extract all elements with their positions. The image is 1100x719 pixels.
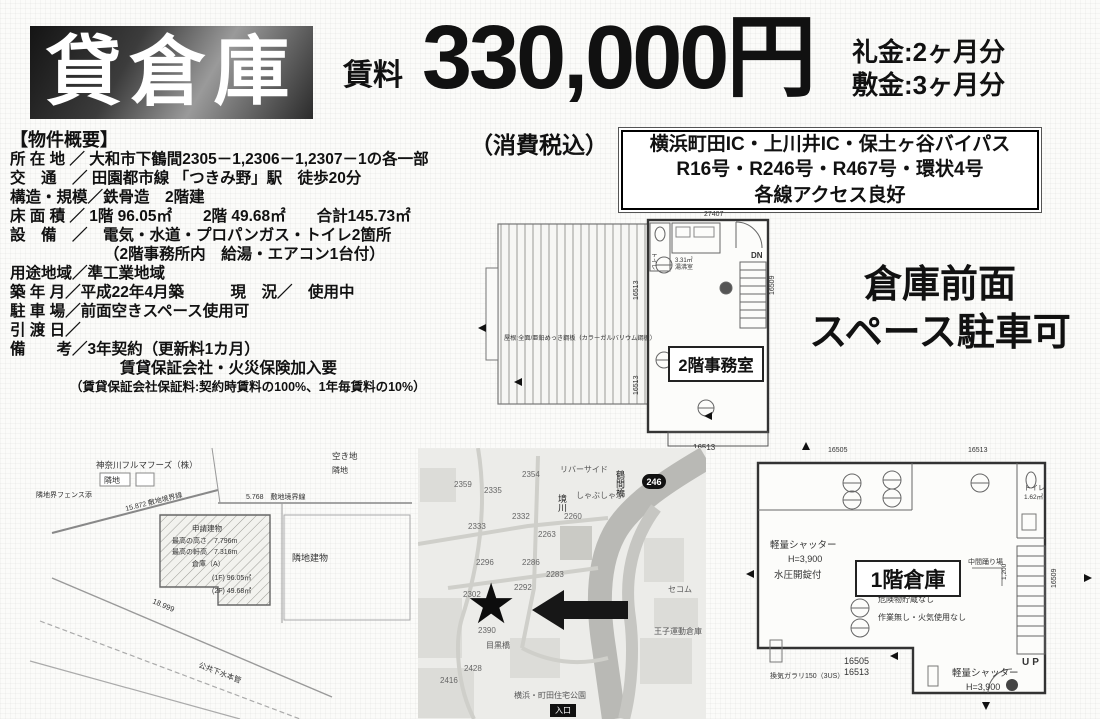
property-line: 床 面 積 ／ 1階 96.05㎡ 2階 49.68㎡ 合計145.73㎡: [10, 207, 490, 226]
map-secom-label: セコム: [668, 584, 692, 595]
room-label-2f: 2階事務室: [668, 346, 764, 382]
map-bridge2-label: 目黒橋: [486, 640, 510, 651]
toilet-area: 1.62㎡: [1024, 492, 1044, 501]
roof-note: 屋根:全面/亜鉛めっき鋼板（カラーガルバリウム鋼板）: [504, 334, 656, 342]
rent-label: 賃料: [343, 50, 403, 94]
tax-note: （消費税込）: [470, 126, 608, 160]
property-line: 駐 車 場／前面空きスペース使用可: [10, 302, 490, 321]
access-line-3: 各線アクセス良好: [754, 183, 905, 208]
property-line: 築 年 月／平成22年4月築 現 況／ 使用中: [10, 283, 490, 302]
floorplan-1f: 軽量シャッター H=3,900 水圧開錠付 危険物貯蔵なし 作業無し・火気使用な…: [740, 428, 1100, 719]
sewer-label: 公共下水本管: [197, 660, 243, 686]
vent-note: 換気ガラリ150（3US）: [770, 671, 844, 680]
room-label-1f: 1階倉庫: [855, 560, 961, 597]
route-246-badge: 246: [642, 474, 666, 489]
neighbor-top-tag: 隣地: [104, 475, 120, 485]
site-plan: 神奈川フルマフーズ（株） 隣地 空き地 隣地 隣地界フェンス添 15.872 敷…: [0, 435, 420, 719]
neighbor-top-label: 神奈川フルマフーズ（株）: [96, 460, 198, 470]
neighbor-right-label: 隣地建物: [292, 552, 328, 563]
landing-label: 中間踊り場: [968, 557, 1003, 566]
roof-notch: [486, 268, 498, 360]
stairs-up-label: UP: [1022, 657, 1042, 668]
map-river-label: 境川: [556, 494, 569, 512]
kitchen-label: 湯沸室: [675, 263, 693, 271]
shutter-right-2: H=3,900: [966, 682, 1000, 692]
property-line: 所 在 地 ／ 大和市下鶴間2305－1,2306－1,2307－1の各一部: [10, 150, 490, 169]
lot-number: 2359: [454, 480, 472, 489]
floorplan-2f: 27407 16513 16513 16509 16513 DN トイレ 3.3…: [468, 210, 780, 455]
knob: [1006, 679, 1018, 691]
shutter-left-3: 水圧開錠付: [774, 569, 822, 581]
access-line-2: R16号・R246号・R467号・環状4号: [676, 157, 983, 182]
map-warehouse-label: 王子運動倉庫: [654, 626, 702, 637]
map-riverside-label: リバーサイド: [560, 464, 608, 475]
map-housing-park-label: 横浜・町田住宅公園: [514, 690, 586, 701]
lot-number: 2286: [522, 558, 540, 567]
property-line: 賃貸保証会社・火災保険加入要: [10, 359, 490, 378]
lot-number: 2335: [484, 486, 502, 495]
neighbor-building-shape: [284, 515, 410, 620]
area-map: リバーサイド しゃぶしゃぶ 鶴間橋 境川 目黒橋 横浜・町田住宅公園 王子運動倉…: [418, 448, 706, 719]
lot-number: 2296: [476, 558, 494, 567]
building-height: 最高の高さ／7.796m: [172, 536, 238, 545]
lot-number: 2263: [538, 530, 556, 539]
vacant-lot-label: 空き地: [332, 451, 358, 461]
dim-top: 27407: [704, 211, 724, 218]
property-overview: 【物件概要】 所 在 地 ／ 大和市下鶴間2305－1,2306－1,2307－…: [10, 131, 490, 397]
banner-text: 貸倉庫: [46, 35, 298, 111]
lot-number: 2416: [440, 676, 458, 685]
dim-left-b: 16513: [633, 375, 640, 395]
property-line: 引 渡 日／: [10, 321, 490, 340]
property-line: 用途地域／準工業地域: [10, 264, 490, 283]
building-title: 申請建物: [192, 523, 222, 533]
lot-number: 2332: [512, 512, 530, 521]
shutter-left-2: H=3,900: [788, 554, 822, 564]
fees-block: 礼金:2ヶ月分 敷金:3ヶ月分: [852, 36, 1005, 101]
park-block: [560, 526, 592, 560]
roof-area: [498, 224, 648, 404]
dim-bottom-1: 16505: [844, 656, 869, 666]
flyer-sheet: 貸倉庫 賃料 330,000円 （消費税込） 礼金:2ヶ月分 敷金:3ヶ月分 横…: [0, 0, 1100, 719]
kitchen-area: 3.31㎡: [675, 256, 693, 264]
property-guarantee-note: （賃貸保証会社保証料:契約時賃料の100%、1年毎賃料の10%）: [10, 378, 490, 397]
floorplan-2f-drawing: 27407 16513 16513 16509 16513 DN トイレ 3.3…: [468, 210, 780, 455]
dim-bottom-2: 16513: [844, 667, 869, 677]
property-line: 交 通 ／ 田園都市線 「つきみ野」駅 徒歩20分: [10, 169, 490, 188]
area-2f: (2F) 49.68㎡: [212, 587, 251, 595]
lot-number: 2333: [468, 522, 486, 531]
site-plan-drawing: 神奈川フルマフーズ（株） 隣地 空き地 隣地 隣地界フェンス添 15.872 敷…: [0, 435, 420, 719]
toilet-label-2f: トイレ: [650, 252, 656, 270]
parking-note-line-2: スペース駐車可: [788, 310, 1092, 358]
lot-number: 2428: [464, 664, 482, 673]
dim-right: 16509: [769, 275, 776, 295]
property-line: 備 考／3年契約（更新料1カ月）: [10, 340, 490, 359]
stairs-dn-label: DN: [751, 251, 763, 260]
location-star-icon: ★: [466, 576, 516, 632]
lot-number: 2260: [564, 512, 582, 521]
property-line: 設 備 ／ 電気・水道・プロパンガス・トイレ2箇所: [10, 226, 490, 245]
vacant-tag: 隣地: [332, 465, 348, 475]
fence-note: 隣地界フェンス添: [36, 490, 92, 499]
building-name: 倉庫（A）: [192, 559, 225, 568]
road-dim: 18.999: [151, 597, 176, 614]
map-gate-badge: 入口: [550, 704, 576, 717]
dim-top-b: 16513: [968, 447, 988, 454]
room-label-1f-text: 1階倉庫: [871, 564, 946, 594]
dim-right-1f: 16509: [1051, 568, 1058, 588]
map-bridge-label: 鶴間橋: [614, 470, 627, 497]
property-line: （2階事務所内 給湯・エアコン1台付）: [10, 245, 490, 264]
property-overview-title: 【物件概要】: [10, 131, 490, 150]
room-label-2f-text: 2階事務室: [678, 352, 753, 376]
route-246-badge-text: 246: [646, 477, 661, 487]
property-line: 構造・規模／鉄骨造 2階建: [10, 188, 490, 207]
boundary-2: 5.768 敷地境界線: [246, 492, 306, 501]
dim-top-a: 16505: [828, 447, 848, 454]
map-gate-badge-text: 入口: [555, 706, 571, 715]
access-line-1: 横浜町田IC・上川井IC・保土ヶ谷バイパス: [650, 132, 1011, 157]
dim-left-a: 16513: [633, 280, 640, 300]
key-money: 礼金:2ヶ月分: [852, 36, 1005, 69]
access-box: 横浜町田IC・上川井IC・保土ヶ谷バイパス R16号・R246号・R467号・環…: [618, 127, 1042, 213]
note-work: 作業無し・火気使用なし: [878, 612, 966, 622]
shutter-left-1: 軽量シャッター: [770, 540, 837, 551]
deposit: 敷金:3ヶ月分: [852, 69, 1005, 102]
location-arrow-icon: [530, 588, 630, 632]
lot-number: 2354: [522, 470, 540, 479]
lot-number: 2283: [546, 570, 564, 579]
shutter-right-1: 軽量シャッター: [952, 668, 1019, 679]
title-banner: 貸倉庫: [30, 26, 313, 119]
area-1f: (1F) 96.05㎡: [212, 574, 251, 582]
parking-note-line-1: 倉庫前面: [788, 262, 1092, 310]
toilet-label-1f: トイレ: [1024, 485, 1045, 492]
rent-amount: 330,000円: [422, 0, 813, 117]
parking-note: 倉庫前面 スペース駐車可: [788, 262, 1092, 357]
access-box-inner: 横浜町田IC・上川井IC・保土ヶ谷バイパス R16号・R246号・R467号・環…: [621, 130, 1039, 210]
landing-dim: 1,200: [1001, 563, 1008, 580]
building-eaves: 最高の軒高／7.316m: [172, 547, 238, 556]
